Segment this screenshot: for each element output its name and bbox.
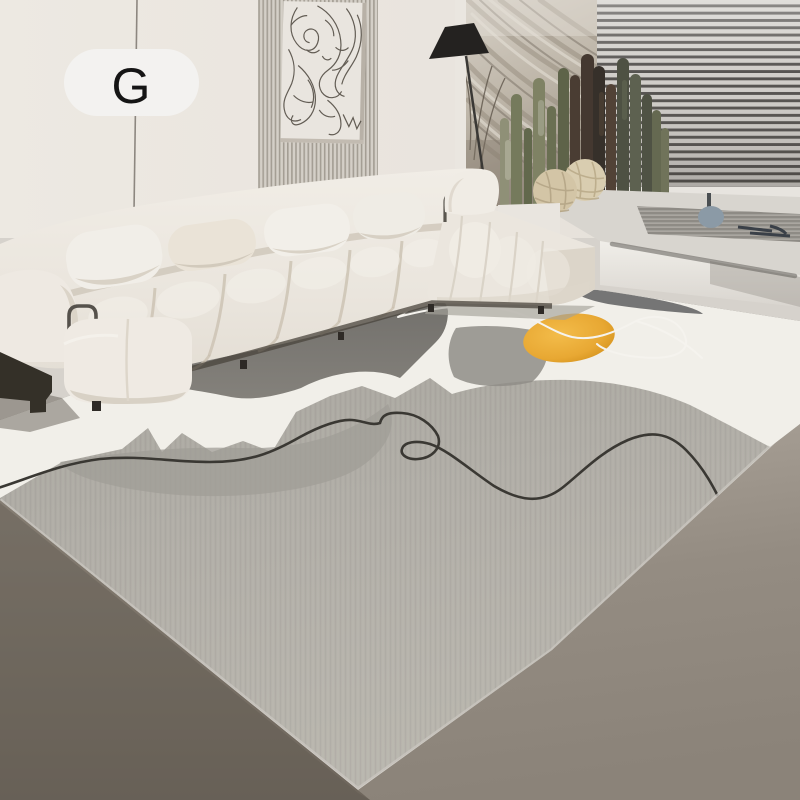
svg-text:G: G (112, 58, 151, 114)
